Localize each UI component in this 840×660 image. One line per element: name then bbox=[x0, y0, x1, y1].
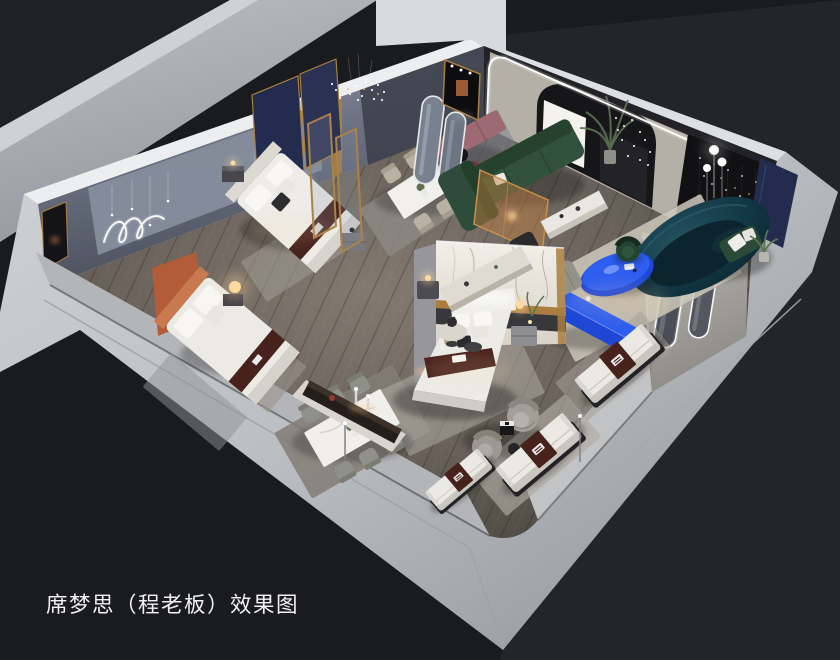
nightstand-right bbox=[511, 326, 537, 346]
render-stage: 席梦思（程老板）效果图 bbox=[0, 0, 840, 660]
red-decor bbox=[329, 395, 335, 401]
render-canvas bbox=[0, 0, 840, 660]
cube-side-table bbox=[500, 421, 514, 435]
green-accent-chair bbox=[614, 238, 642, 264]
render-caption: 席梦思（程老板）效果图 bbox=[46, 588, 299, 619]
candle-glow bbox=[507, 211, 517, 221]
